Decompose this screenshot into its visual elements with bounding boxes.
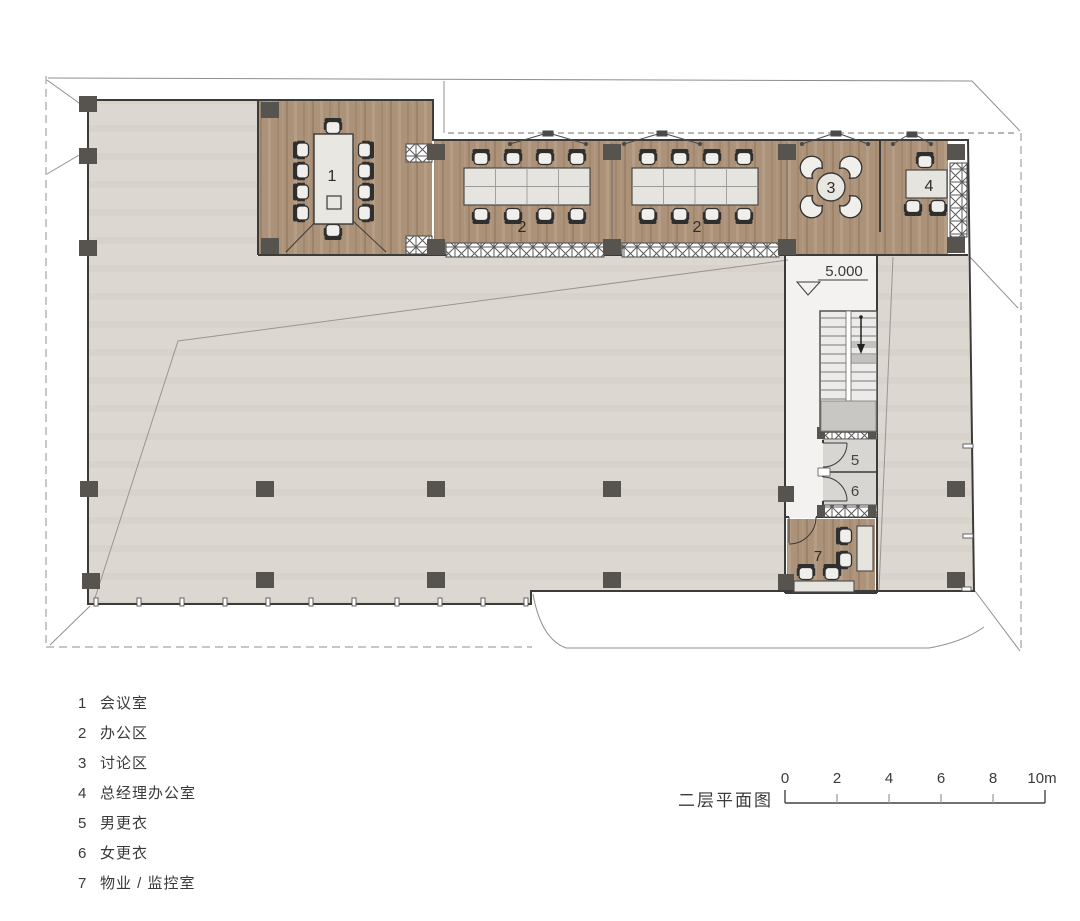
column: [603, 144, 621, 160]
work-desk: [794, 581, 854, 592]
chair-icon: [324, 118, 342, 134]
legend-item-number: 3: [78, 755, 100, 772]
chair-icon: [735, 209, 753, 225]
legend-item-number: 6: [78, 845, 100, 862]
column: [947, 144, 965, 160]
scale-tick-label: 4: [885, 770, 893, 787]
elevation-value: 5.000: [825, 263, 863, 280]
chair-icon: [735, 149, 753, 165]
scale-bar: 0 2 4 6 8 10m: [781, 770, 1057, 803]
chair-icon: [324, 225, 342, 241]
chair-icon: [359, 162, 375, 180]
scale-tick-label: 2: [833, 770, 841, 787]
chair-icon: [568, 149, 586, 165]
chair-icon: [904, 201, 922, 217]
scale-tick-label: 8: [989, 770, 997, 787]
column: [82, 573, 100, 589]
glass-strip-east: [622, 243, 779, 257]
chair-icon: [823, 564, 841, 580]
scale-tick-label: 10m: [1027, 770, 1056, 787]
column: [79, 240, 97, 256]
column: [778, 144, 796, 160]
open-floor-east: [877, 256, 974, 591]
room-label-discussion: 3: [827, 180, 836, 197]
chair-icon: [639, 149, 657, 165]
chair-icon: [671, 149, 689, 165]
legend-item: 5 男更衣: [78, 812, 196, 842]
chair-icon: [504, 149, 522, 165]
legend-item: 1 会议室: [78, 692, 196, 722]
wall-nub: [817, 505, 825, 517]
chair-icon: [929, 201, 947, 217]
legend-item-number: 5: [78, 815, 100, 832]
chair-icon: [536, 149, 554, 165]
chair-icon: [703, 149, 721, 165]
scale-tick-label: 6: [937, 770, 945, 787]
room-label-office-west: 2: [518, 219, 527, 236]
chair-icon: [536, 209, 554, 225]
room-label-office-east: 2: [693, 219, 702, 236]
chair-icon: [836, 527, 852, 545]
column: [427, 572, 445, 588]
monitor-desk: [857, 526, 873, 571]
column: [947, 481, 965, 497]
canopy-outline: [533, 594, 984, 648]
column: [603, 572, 621, 588]
stair-divider: [846, 311, 851, 401]
room-label-meeting: 1: [328, 168, 337, 185]
chair-icon: [797, 564, 815, 580]
column: [427, 239, 445, 255]
column: [947, 237, 965, 253]
scale-tick-label: 0: [781, 770, 789, 787]
legend-item-name: 男更衣: [100, 812, 148, 833]
legend-item-name: 总经理办公室: [100, 782, 196, 803]
legend-item: 7 物业 / 监控室: [78, 872, 196, 902]
chair-icon: [568, 209, 586, 225]
chair-icon: [703, 209, 721, 225]
legend-item: 6 女更衣: [78, 842, 196, 872]
plan-title: 二层平面图: [678, 791, 773, 810]
scale-bar-mid-ticks: [837, 794, 993, 803]
column: [427, 481, 445, 497]
chair-icon: [359, 183, 375, 201]
legend-item-number: 7: [78, 875, 100, 892]
column: [79, 148, 97, 164]
legend-item: 4 总经理办公室: [78, 782, 196, 812]
column: [256, 481, 274, 497]
chair-icon: [671, 209, 689, 225]
legend-item-name: 物业 / 监控室: [100, 872, 196, 893]
legend-item-name: 办公区: [100, 722, 148, 743]
chair-icon: [916, 152, 934, 168]
column: [256, 572, 274, 588]
column: [80, 481, 98, 497]
wall-nub: [868, 505, 876, 517]
legend-item: 2 办公区: [78, 722, 196, 752]
room-label-men: 5: [851, 452, 859, 469]
legend-item: 3 讨论区: [78, 752, 196, 782]
chair-icon: [472, 209, 490, 225]
column: [603, 481, 621, 497]
column: [778, 486, 794, 502]
legend: 1 会议室 2 办公区 3 讨论区 4 总经理办公室 5 男更衣 6 女更衣 7…: [78, 692, 196, 902]
column: [778, 574, 794, 590]
chair-icon: [639, 209, 657, 225]
legend-item-number: 2: [78, 725, 100, 742]
chair-icon: [359, 204, 375, 222]
column: [79, 96, 97, 112]
legend-item-number: 4: [78, 785, 100, 802]
legend-item-number: 1: [78, 695, 100, 712]
column: [427, 144, 445, 160]
chair-icon: [359, 141, 375, 159]
floor-plan-page: 1 2 2 3: [0, 0, 1080, 921]
room-label-women: 6: [851, 483, 859, 500]
chair-icon: [472, 149, 490, 165]
glass-strip-west: [446, 243, 604, 257]
chair-icon: [293, 141, 309, 159]
column: [778, 239, 796, 255]
column: [261, 238, 279, 254]
chair-icon: [293, 162, 309, 180]
legend-item-name: 女更衣: [100, 842, 148, 863]
legend-item-name: 会议室: [100, 692, 148, 713]
column: [603, 239, 621, 255]
divider-nub: [818, 468, 830, 476]
projector: [327, 196, 341, 209]
stair-landing: [821, 401, 876, 431]
chair-icon: [293, 183, 309, 201]
scale-bar-end-ticks: [785, 790, 1045, 803]
legend-item-name: 讨论区: [100, 752, 148, 773]
chair-icon: [293, 204, 309, 222]
column: [261, 102, 279, 118]
room-label-property: 7: [814, 548, 822, 565]
room-label-manager: 4: [925, 178, 934, 195]
stair-tread-shaded: [851, 355, 876, 362]
column: [947, 572, 965, 588]
manager-window-strip: [950, 163, 967, 237]
